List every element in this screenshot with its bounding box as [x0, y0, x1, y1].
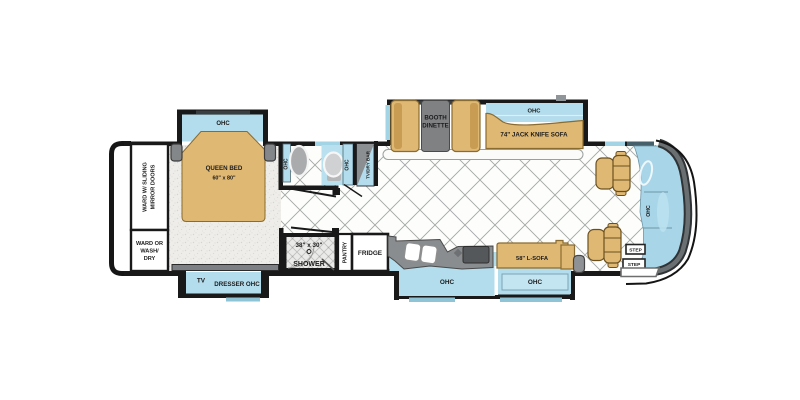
svg-text:FRIDGE: FRIDGE — [358, 250, 383, 257]
svg-text:STEP: STEP — [628, 262, 641, 268]
svg-text:BOOTH: BOOTH — [424, 115, 447, 122]
svg-text:OHC: OHC — [284, 158, 290, 170]
svg-text:74" JACK KNIFE SOFA: 74" JACK KNIFE SOFA — [500, 132, 568, 139]
svg-text:DRESSER OHC: DRESSER OHC — [214, 281, 260, 288]
svg-text:OHC: OHC — [345, 159, 351, 171]
svg-text:WARD W/ SLIDING: WARD W/ SLIDING — [143, 162, 149, 212]
svg-text:DINETTE: DINETTE — [422, 123, 448, 130]
svg-text:QUEEN BED: QUEEN BED — [206, 165, 243, 172]
svg-text:TV: TV — [197, 278, 206, 285]
svg-text:OHC: OHC — [440, 279, 455, 286]
svg-text:SHOWER: SHOWER — [293, 261, 325, 268]
svg-text:OHC: OHC — [646, 205, 652, 217]
svg-text:WARD OR: WARD OR — [136, 241, 163, 247]
svg-text:38" x 30": 38" x 30" — [296, 242, 323, 249]
svg-text:PANTRY: PANTRY — [343, 241, 349, 263]
svg-text:DRY: DRY — [144, 256, 156, 262]
svg-text:OHC: OHC — [216, 121, 230, 127]
svg-text:58" L-SOFA: 58" L-SOFA — [516, 256, 549, 262]
svg-text:OHC: OHC — [528, 279, 543, 286]
svg-text:MIRROR DOORS: MIRROR DOORS — [151, 164, 157, 209]
svg-text:60" x 80": 60" x 80" — [212, 176, 236, 182]
svg-text:TV/DRY BAR: TV/DRY BAR — [366, 150, 371, 179]
svg-text:OHC: OHC — [528, 109, 542, 115]
svg-text:WASH/: WASH/ — [140, 249, 159, 255]
svg-text:STEP: STEP — [629, 248, 642, 254]
